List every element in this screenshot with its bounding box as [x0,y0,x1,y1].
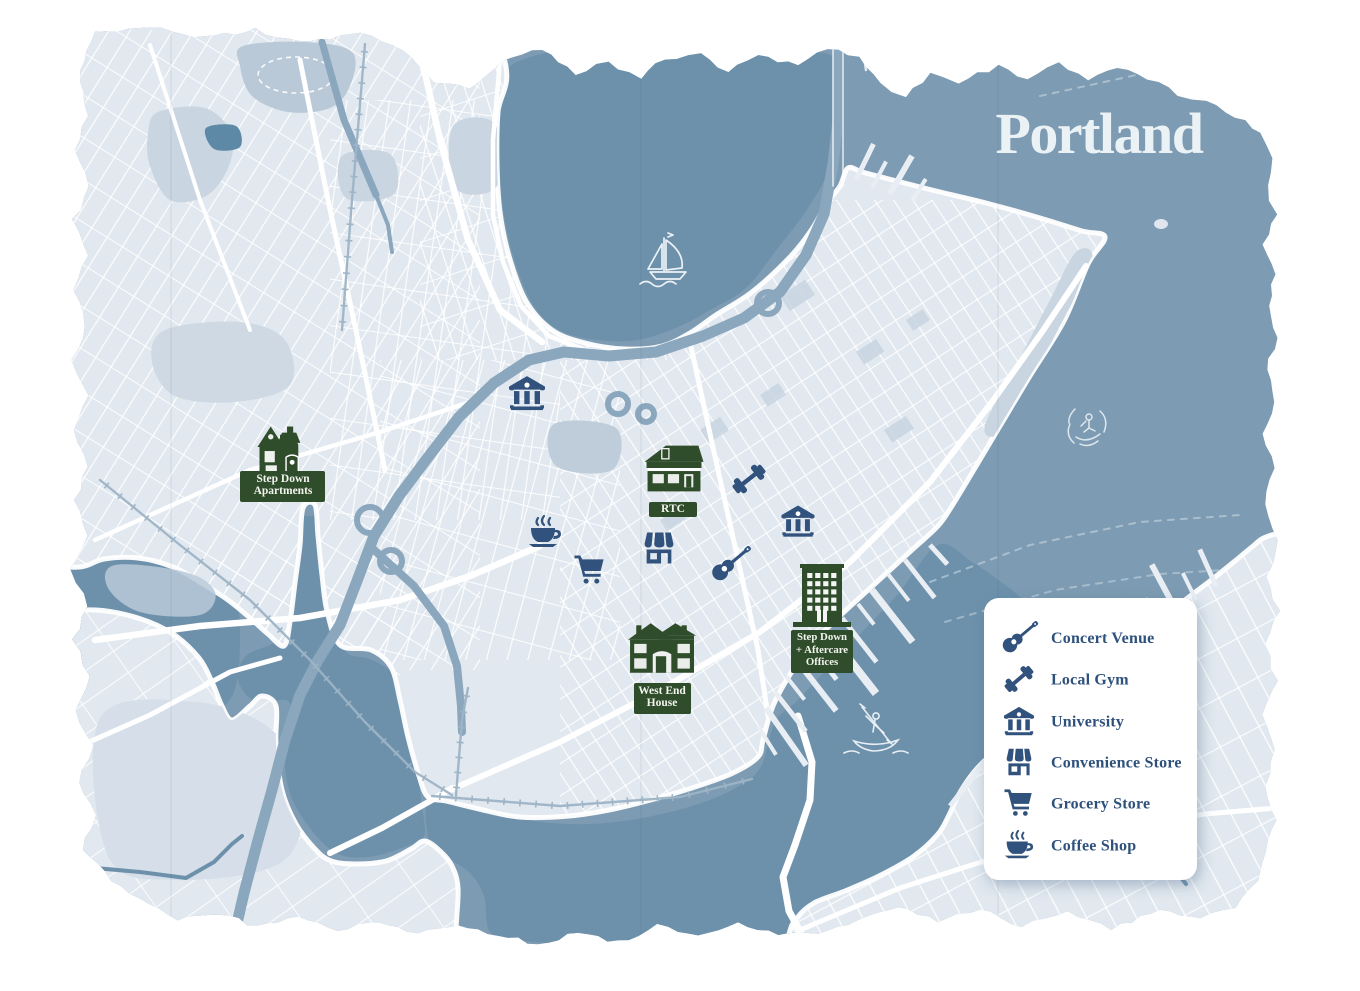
svg-text:Convenience Store: Convenience Store [1051,755,1182,772]
svg-text:Coffee Shop: Coffee Shop [1051,838,1136,855]
svg-text:RTC: RTC [661,503,685,515]
svg-text:University: University [1051,714,1124,731]
svg-text:Grocery Store: Grocery Store [1051,796,1150,813]
svg-text:Concert Venue: Concert Venue [1051,630,1154,647]
svg-text:House: House [647,697,678,709]
svg-text:West End: West End [638,685,686,697]
svg-text:Step Down: Step Down [256,473,310,485]
svg-text:Apartments: Apartments [254,485,313,497]
svg-text:Offices: Offices [806,656,838,668]
svg-text:Step Down: Step Down [797,631,847,643]
svg-text:+ Aftercare: + Aftercare [796,644,848,656]
svg-text:Local Gym: Local Gym [1051,672,1129,689]
svg-text:Portland: Portland [995,101,1203,166]
